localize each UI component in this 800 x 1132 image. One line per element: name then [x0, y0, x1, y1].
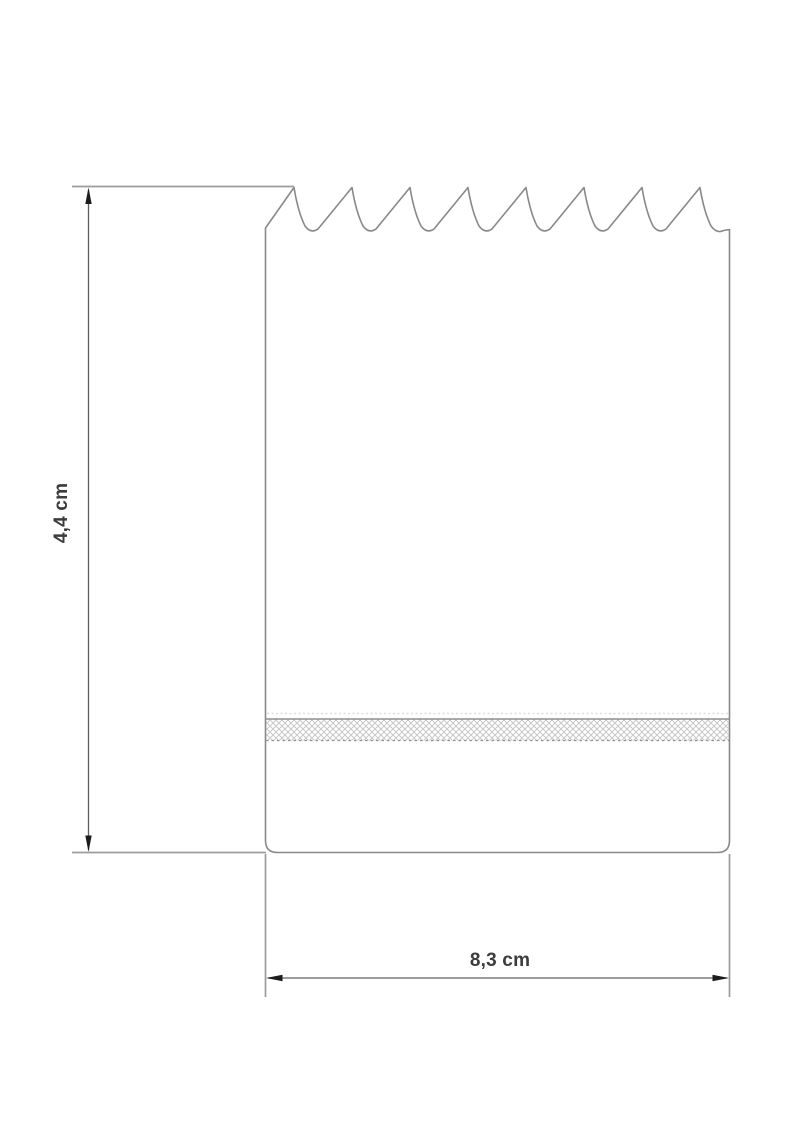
height-dimension-label: 4,4 cm — [51, 483, 73, 543]
height-dim-arrow-top — [85, 188, 91, 205]
glue-strip — [267, 719, 730, 741]
notepad-outline — [266, 188, 730, 853]
height-dim-arrow-bottom — [85, 836, 91, 853]
diagram-canvas: 4,4 cm 8,3 cm — [0, 0, 800, 1132]
dimension-drawing — [0, 0, 800, 1132]
width-dimension-label: 8,3 cm — [470, 950, 530, 972]
width-dim-arrow-right — [713, 975, 730, 981]
width-dim-arrow-left — [266, 975, 283, 981]
